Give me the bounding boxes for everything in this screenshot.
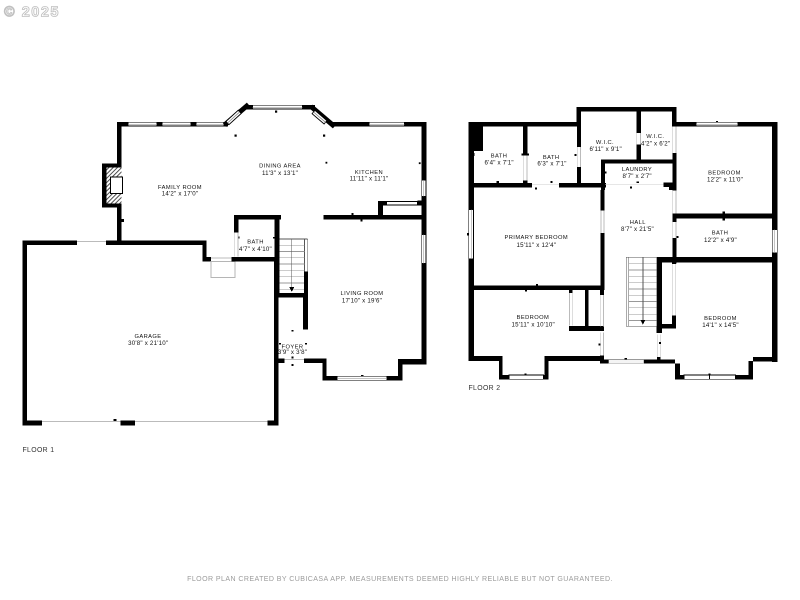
svg-text:4'2" x 6'2": 4'2" x 6'2" <box>641 141 670 148</box>
svg-text:11'11" x 11'1": 11'11" x 11'1" <box>350 176 389 183</box>
svg-text:4'7" x 4'10": 4'7" x 4'10" <box>239 246 272 253</box>
svg-text:6'11" x 9'1": 6'11" x 9'1" <box>589 146 621 153</box>
svg-text:BATH: BATH <box>712 231 729 237</box>
svg-text:FLOOR PLAN CREATED BY CUBICASA: FLOOR PLAN CREATED BY CUBICASA APP. MEAS… <box>187 576 613 583</box>
svg-text:DINING AREA: DINING AREA <box>259 164 301 170</box>
svg-text:BEDROOM: BEDROOM <box>708 170 741 176</box>
svg-text:12'2" x 4'9": 12'2" x 4'9" <box>704 237 737 244</box>
svg-text:6'4" x 7'1": 6'4" x 7'1" <box>485 159 514 166</box>
svg-text:8'7" x 21'5": 8'7" x 21'5" <box>621 226 654 233</box>
svg-text:BEDROOM: BEDROOM <box>704 316 737 322</box>
svg-text:30'8" x 21'10": 30'8" x 21'10" <box>128 340 168 347</box>
svg-text:12'2" x 11'0": 12'2" x 11'0" <box>707 177 743 184</box>
svg-text:HALL: HALL <box>630 220 646 226</box>
svg-text:BEDROOM: BEDROOM <box>517 315 550 321</box>
svg-text:11'3" x 13'1": 11'3" x 13'1" <box>262 170 298 177</box>
svg-text:14'2" x 17'0": 14'2" x 17'0" <box>162 191 199 198</box>
svg-text:17'10" x 19'6": 17'10" x 19'6" <box>342 298 382 305</box>
svg-text:FLOOR 1: FLOOR 1 <box>23 447 55 454</box>
svg-text:© 2025: © 2025 <box>4 5 60 21</box>
svg-text:W.I.C.: W.I.C. <box>596 140 614 146</box>
svg-text:LIVING ROOM: LIVING ROOM <box>341 291 384 297</box>
svg-text:PRIMARY BEDROOM: PRIMARY BEDROOM <box>504 235 568 241</box>
svg-text:BATH: BATH <box>247 240 264 246</box>
svg-text:6'3" x 7'1": 6'3" x 7'1" <box>537 160 566 167</box>
svg-text:15'11" x 12'4": 15'11" x 12'4" <box>516 242 556 249</box>
svg-text:15'11" x 10'10": 15'11" x 10'10" <box>512 321 555 328</box>
svg-text:GARAGE: GARAGE <box>134 334 161 340</box>
svg-text:8'7" x 2'7": 8'7" x 2'7" <box>623 173 652 180</box>
svg-text:3'9" x 3'8": 3'9" x 3'8" <box>278 349 307 356</box>
svg-text:FLOOR 2: FLOOR 2 <box>469 385 501 392</box>
svg-text:14'1" x 14'5": 14'1" x 14'5" <box>702 322 739 329</box>
svg-text:W.I.C.: W.I.C. <box>646 134 664 140</box>
